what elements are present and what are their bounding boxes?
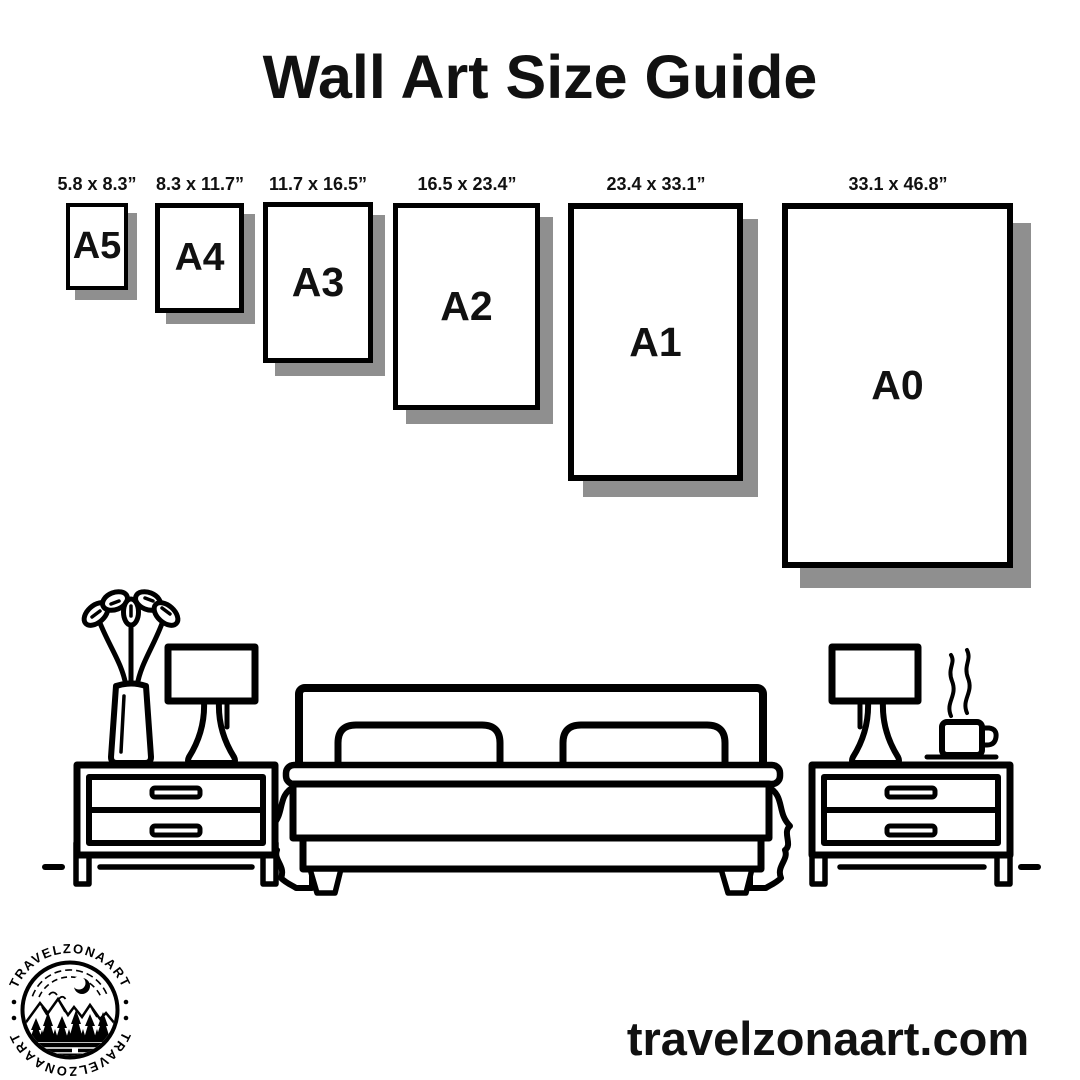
bedroom-scene — [0, 575, 1080, 900]
size-name-a0: A0 — [871, 362, 923, 409]
table-lamp-icon — [168, 647, 255, 763]
page-title: Wall Art Size Guide — [0, 42, 1080, 112]
size-rect-a0: A0 — [782, 203, 1013, 568]
size-rect-a2: A2 — [393, 203, 540, 410]
nightstand-icon — [812, 765, 1010, 884]
coffee-cup-icon — [927, 650, 996, 757]
size-rect-a1: A1 — [568, 203, 743, 481]
size-name-a5: A5 — [73, 225, 122, 268]
size-dimension-label-a0: 33.1 x 46.8” — [788, 174, 1008, 195]
size-rect-a5: A5 — [66, 203, 128, 290]
size-rect-a4: A4 — [155, 203, 244, 313]
website-url: travelzonaart.com — [598, 1011, 1058, 1066]
size-name-a4: A4 — [175, 236, 225, 280]
size-name-a1: A1 — [629, 319, 681, 366]
size-rect-a3: A3 — [263, 202, 373, 363]
nightstand-icon — [76, 765, 276, 884]
wall-art-size-guide-page: Wall Art Size Guide 5.8 x 8.3” A5 8.3 x … — [0, 0, 1080, 1080]
table-lamp-icon — [832, 647, 918, 763]
size-name-a2: A2 — [440, 283, 492, 330]
size-dimension-label-a1: 23.4 x 33.1” — [546, 174, 766, 195]
size-dimension-label-a2: 16.5 x 23.4” — [357, 174, 577, 195]
bed-icon — [272, 688, 790, 893]
size-name-a3: A3 — [292, 259, 344, 306]
brand-logo: TRAVELZONAART TRAVELZONAART — [2, 941, 138, 1077]
